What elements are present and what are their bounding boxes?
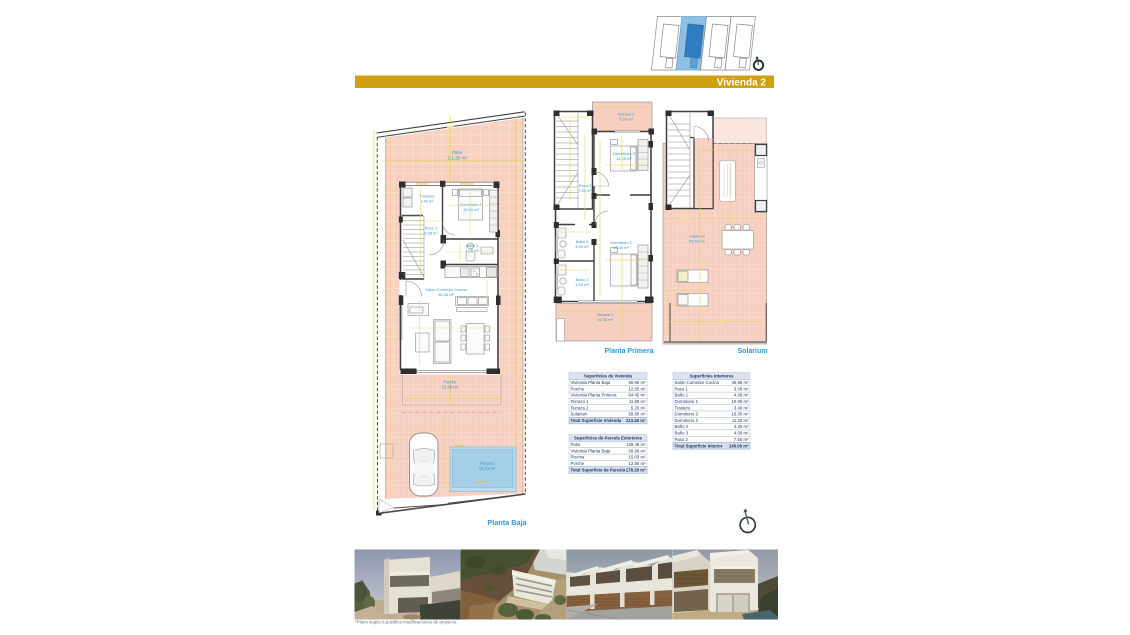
svg-text:213.45 m²: 213.45 m² bbox=[626, 418, 646, 423]
svg-text:Dormitorio 3: Dormitorio 3 bbox=[675, 418, 699, 423]
svg-text:Total Superficie de Parcela: Total Superficie de Parcela bbox=[571, 468, 626, 473]
svg-text:4.00 m²: 4.00 m² bbox=[734, 431, 749, 436]
svg-text:Vivienda Planta Baja: Vivienda Planta Baja bbox=[571, 380, 611, 385]
svg-text:Dormitorio 1: Dormitorio 1 bbox=[675, 399, 699, 404]
svg-text:55.63 m²: 55.63 m² bbox=[689, 239, 705, 244]
svg-text:7.50 m²: 7.50 m² bbox=[734, 437, 749, 442]
svg-text:Vivienda Planta Primera: Vivienda Planta Primera bbox=[571, 393, 618, 398]
svg-text:Paso 2: Paso 2 bbox=[675, 437, 689, 442]
svg-text:Planta Baja: Planta Baja bbox=[487, 518, 527, 527]
svg-text:Superficies de Vivienda: Superficies de Vivienda bbox=[584, 374, 633, 379]
svg-text:*Plano sujeto a posibles modif: *Plano sujeto a posibles modificaciones … bbox=[355, 619, 458, 624]
svg-text:Porche: Porche bbox=[571, 386, 585, 391]
svg-text:Total Superficie Interior: Total Superficie Interior bbox=[675, 443, 723, 448]
svg-text:Superficies de Parcela Exterio: Superficies de Parcela Exteriores bbox=[574, 436, 643, 441]
svg-text:128.46 m²: 128.46 m² bbox=[626, 442, 646, 447]
svg-text:4.08 m²: 4.08 m² bbox=[734, 393, 749, 398]
svg-text:Piscina: Piscina bbox=[571, 455, 585, 460]
svg-text:Dormitorio 2: Dormitorio 2 bbox=[675, 412, 699, 417]
svg-text:178.29 m²: 178.29 m² bbox=[626, 468, 646, 473]
svg-text:16.30 m²: 16.30 m² bbox=[732, 412, 750, 417]
svg-text:Patio: Patio bbox=[571, 442, 581, 447]
svg-text:60.96 m²: 60.96 m² bbox=[629, 380, 647, 385]
svg-text:3.40 m²: 3.40 m² bbox=[420, 199, 434, 204]
svg-text:64.45 m²: 64.45 m² bbox=[629, 393, 647, 398]
svg-text:36.96 m²: 36.96 m² bbox=[438, 292, 454, 297]
svg-text:15.03 m²: 15.03 m² bbox=[479, 466, 496, 471]
svg-text:36.96 m²: 36.96 m² bbox=[732, 380, 750, 385]
svg-text:Solarium: Solarium bbox=[738, 348, 768, 355]
svg-text:Salón Comedor Cocina: Salón Comedor Cocina bbox=[675, 380, 720, 385]
svg-text:5.20 m²: 5.20 m² bbox=[631, 405, 646, 410]
svg-text:Vivienda Planta Baja: Vivienda Planta Baja bbox=[571, 448, 611, 453]
svg-text:60.96 m²: 60.96 m² bbox=[629, 448, 647, 453]
svg-text:12.85 m²: 12.85 m² bbox=[629, 386, 647, 391]
svg-text:Baño 3: Baño 3 bbox=[675, 431, 689, 436]
svg-text:10.06 m²: 10.06 m² bbox=[732, 399, 750, 404]
svg-text:Paso 1: Paso 1 bbox=[675, 386, 689, 391]
svg-text:4.00 m²: 4.00 m² bbox=[575, 282, 589, 287]
svg-text:7.50 m²: 7.50 m² bbox=[578, 188, 592, 193]
svg-text:10.00 m²: 10.00 m² bbox=[463, 207, 479, 212]
svg-text:16.30 m²: 16.30 m² bbox=[613, 245, 629, 250]
svg-text:Patio: Patio bbox=[452, 150, 463, 155]
svg-text:15.03 m²: 15.03 m² bbox=[629, 455, 647, 460]
svg-text:11.95 m²: 11.95 m² bbox=[597, 317, 613, 322]
svg-text:Planta Primera: Planta Primera bbox=[604, 348, 653, 355]
svg-text:Trastero: Trastero bbox=[675, 405, 691, 410]
svg-text:148.06 m²: 148.06 m² bbox=[729, 443, 749, 448]
svg-text:Baño 2: Baño 2 bbox=[675, 424, 689, 429]
svg-text:5.20 m²: 5.20 m² bbox=[619, 117, 633, 122]
svg-text:12.86 m²: 12.86 m² bbox=[442, 385, 459, 390]
svg-text:4.00 m²: 4.00 m² bbox=[575, 244, 589, 249]
svg-text:12.85 m²: 12.85 m² bbox=[629, 461, 647, 466]
svg-text:3.08 m²: 3.08 m² bbox=[424, 231, 438, 236]
svg-text:Baño 1: Baño 1 bbox=[675, 393, 689, 398]
svg-text:Terraza 1: Terraza 1 bbox=[571, 399, 590, 404]
svg-text:3.08 m²: 3.08 m² bbox=[734, 386, 749, 391]
svg-text:11.25 m²: 11.25 m² bbox=[616, 156, 632, 161]
svg-text:58.80 m²: 58.80 m² bbox=[629, 412, 647, 417]
svg-text:Vivienda 2: Vivienda 2 bbox=[717, 77, 767, 88]
svg-text:4.30 m²: 4.30 m² bbox=[734, 424, 749, 429]
svg-text:11.95 m²: 11.95 m² bbox=[629, 399, 646, 404]
svg-text:Terraza 2: Terraza 2 bbox=[571, 405, 590, 410]
svg-text:3.40 m²: 3.40 m² bbox=[734, 405, 749, 410]
svg-text:11.25 m²: 11.25 m² bbox=[732, 418, 749, 423]
svg-text:Superficies Interiores: Superficies Interiores bbox=[690, 374, 735, 379]
svg-text:Solarium: Solarium bbox=[571, 412, 588, 417]
svg-text:Porche: Porche bbox=[571, 461, 585, 466]
svg-text:Total Superficie Vivienda: Total Superficie Vivienda bbox=[571, 418, 622, 423]
